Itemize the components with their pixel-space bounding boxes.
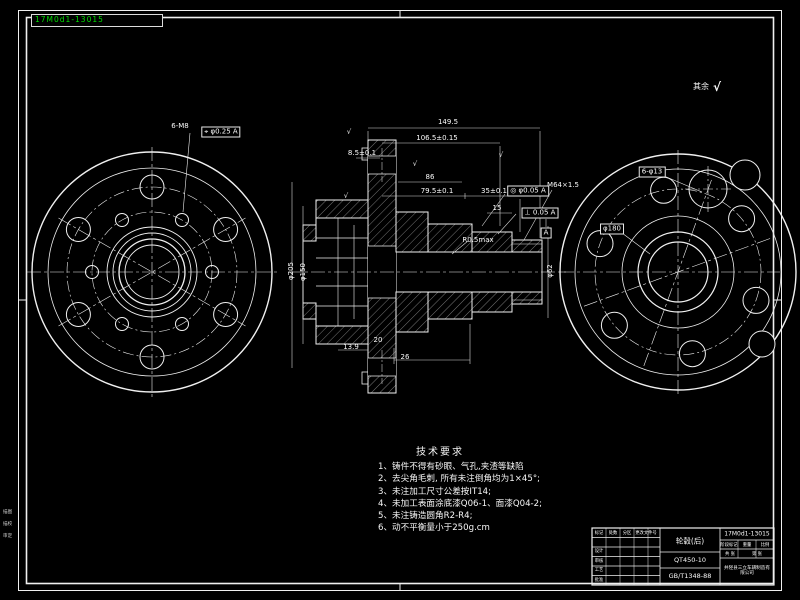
margin-note: 审定 [3, 533, 12, 539]
tech-requirement-item: 2、去尖角毛刺, 所有未注倒角均为1×45°; [378, 473, 588, 485]
tolerance-frame: ⌖ φ0.25 A [201, 127, 240, 138]
tech-requirement-item: 1、铸件不得有砂眼、气孔,夹渣等缺陷 [378, 461, 588, 473]
part-name: 轮毂(后) [676, 536, 704, 547]
right-view [560, 150, 796, 396]
dimension-label: 20 [374, 336, 383, 344]
dimension-label: 86 [426, 173, 435, 181]
field-stage: 阶段标记 [720, 542, 737, 548]
tech-requirement-item: 5、未注铸造圆角R2-R4; [378, 510, 588, 522]
dimension-label: R0.5max [462, 236, 493, 244]
dimension-label: 79.5±0.1 [421, 187, 454, 195]
roughness-mark: √ [413, 160, 417, 168]
tolerance-frame: ◎ φ0.05 A [507, 186, 549, 197]
field-craft: 工艺 [595, 567, 604, 573]
tolerance-frame: ⊥ 0.05 A [522, 208, 559, 219]
dimension-label: 6-M8 [171, 122, 188, 130]
roughness-mark: √ [713, 83, 721, 91]
field-count: 处数 [609, 530, 618, 536]
tech-requirements-title: 技术要求 [416, 443, 588, 458]
field-zone: 分区 [623, 530, 632, 536]
dimension-label: φ62 [546, 264, 554, 278]
field-mark: 标记 [595, 530, 604, 536]
margin-note: 描图 [3, 509, 12, 515]
technical-requirements: 技术要求 1、铸件不得有砂眼、气孔,夹渣等缺陷 2、去尖角毛刺, 所有未注倒角均… [378, 443, 588, 535]
field-design: 设计 [595, 548, 604, 554]
surface-note: 其余 [693, 83, 709, 91]
material-grade: QT450-10 [674, 556, 706, 564]
field-weight: 重量 [743, 542, 752, 548]
roughness-mark: √ [344, 192, 348, 200]
company-name: 井陉县三立车辆制造有限公司 [722, 566, 772, 576]
dimension-label: 6-φ13 [639, 167, 666, 178]
field-audit: 审核 [595, 558, 604, 564]
field-change-doc: 更改文件号 [635, 530, 656, 536]
dimension-label: φ205 [287, 262, 295, 280]
dimension-label: 149.5 [438, 118, 458, 126]
left-view [27, 133, 277, 397]
margin-note: 描校 [3, 521, 12, 527]
dimension-label: 8.5±0.1 [348, 149, 376, 157]
dimension-label: φ150 [299, 263, 307, 281]
material-standard: GB/T1348-88 [669, 572, 712, 580]
datum-label: A [541, 228, 552, 239]
dimension-label: 35±0.1 [481, 187, 507, 195]
field-sheet-total: 共 张 [725, 551, 735, 557]
field-scale: 比例 [761, 542, 770, 548]
dimension-label: φ180 [600, 224, 624, 235]
roughness-mark: √ [347, 128, 351, 136]
dimension-label: 15 [493, 204, 502, 212]
dimension-label: 26 [401, 353, 410, 361]
dimension-label: 13.9 [343, 343, 359, 351]
drawing-sheet: 17M0d1-13015 149.5 106.5±0.15 8.5±0.1 86… [0, 0, 800, 600]
tech-requirement-item: 3、未注加工尺寸公差按IT14; [378, 486, 588, 498]
thread-label: M64×1.5 [547, 181, 579, 189]
tech-requirement-item: 4、未加工表面涂底漆Q06-1、面漆Q04-2; [378, 498, 588, 510]
dimension-label: 106.5±0.15 [416, 134, 458, 142]
drawing-code-label: 17M0d1-13015 [31, 14, 163, 27]
drawing-number: 17M0d1-13015 [724, 531, 770, 538]
tech-requirement-item: 6、动不平衡量小于250g.cm [378, 522, 588, 534]
field-approve: 批准 [595, 577, 604, 583]
roughness-mark: √ [499, 151, 503, 159]
field-sheet-page: 第 张 [752, 551, 762, 557]
